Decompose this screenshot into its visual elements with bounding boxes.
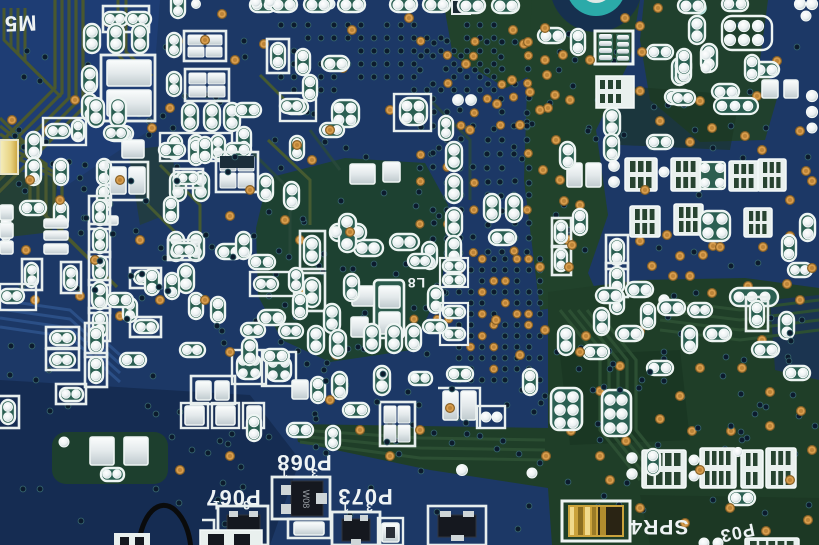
- svg-text:W08: W08: [301, 490, 311, 509]
- svg-text:SPR4: SPR4: [630, 515, 689, 538]
- svg-text:L8: L8: [407, 275, 425, 291]
- svg-text:M5: M5: [4, 10, 37, 36]
